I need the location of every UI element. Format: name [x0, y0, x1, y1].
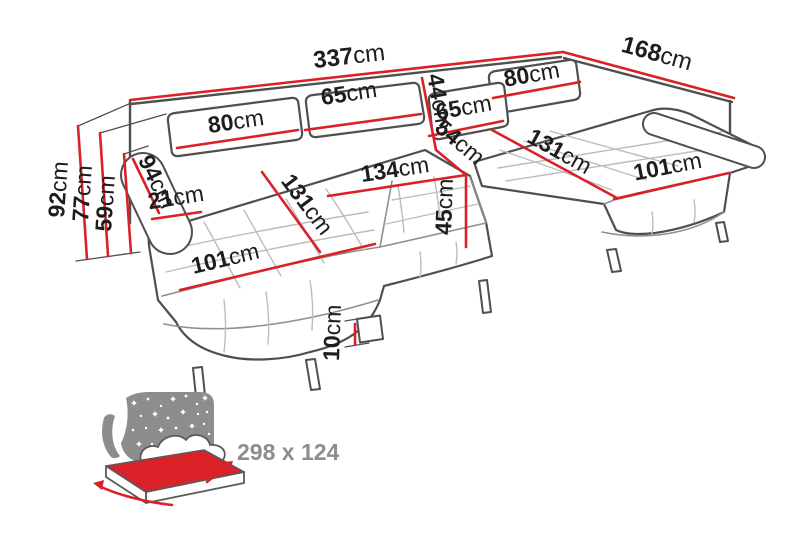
leg-right-rear — [716, 222, 728, 242]
svg-text:45cm: 45cm — [430, 178, 458, 235]
night-sky-sliver — [102, 414, 120, 458]
fold-out-bed — [93, 435, 244, 505]
leg-left-mid — [306, 359, 320, 390]
sleeping-function-icon: 298 x 124 — [93, 392, 340, 505]
leg-right-front — [607, 249, 621, 272]
svg-text:59cm: 59cm — [90, 174, 120, 232]
leg-middle-right — [479, 280, 491, 313]
sleeping-area-size: 298 x 124 — [237, 439, 340, 465]
sofa-dimension-diagram: 337cm 168cm 92cm 77cm 59cm 80cm — [0, 0, 800, 533]
right-chaise — [474, 109, 761, 236]
svg-text:10cm: 10cm — [318, 304, 346, 361]
svg-text:337cm: 337cm — [312, 39, 387, 74]
sofa-line-art — [76, 57, 761, 426]
leg-runner — [357, 316, 383, 343]
